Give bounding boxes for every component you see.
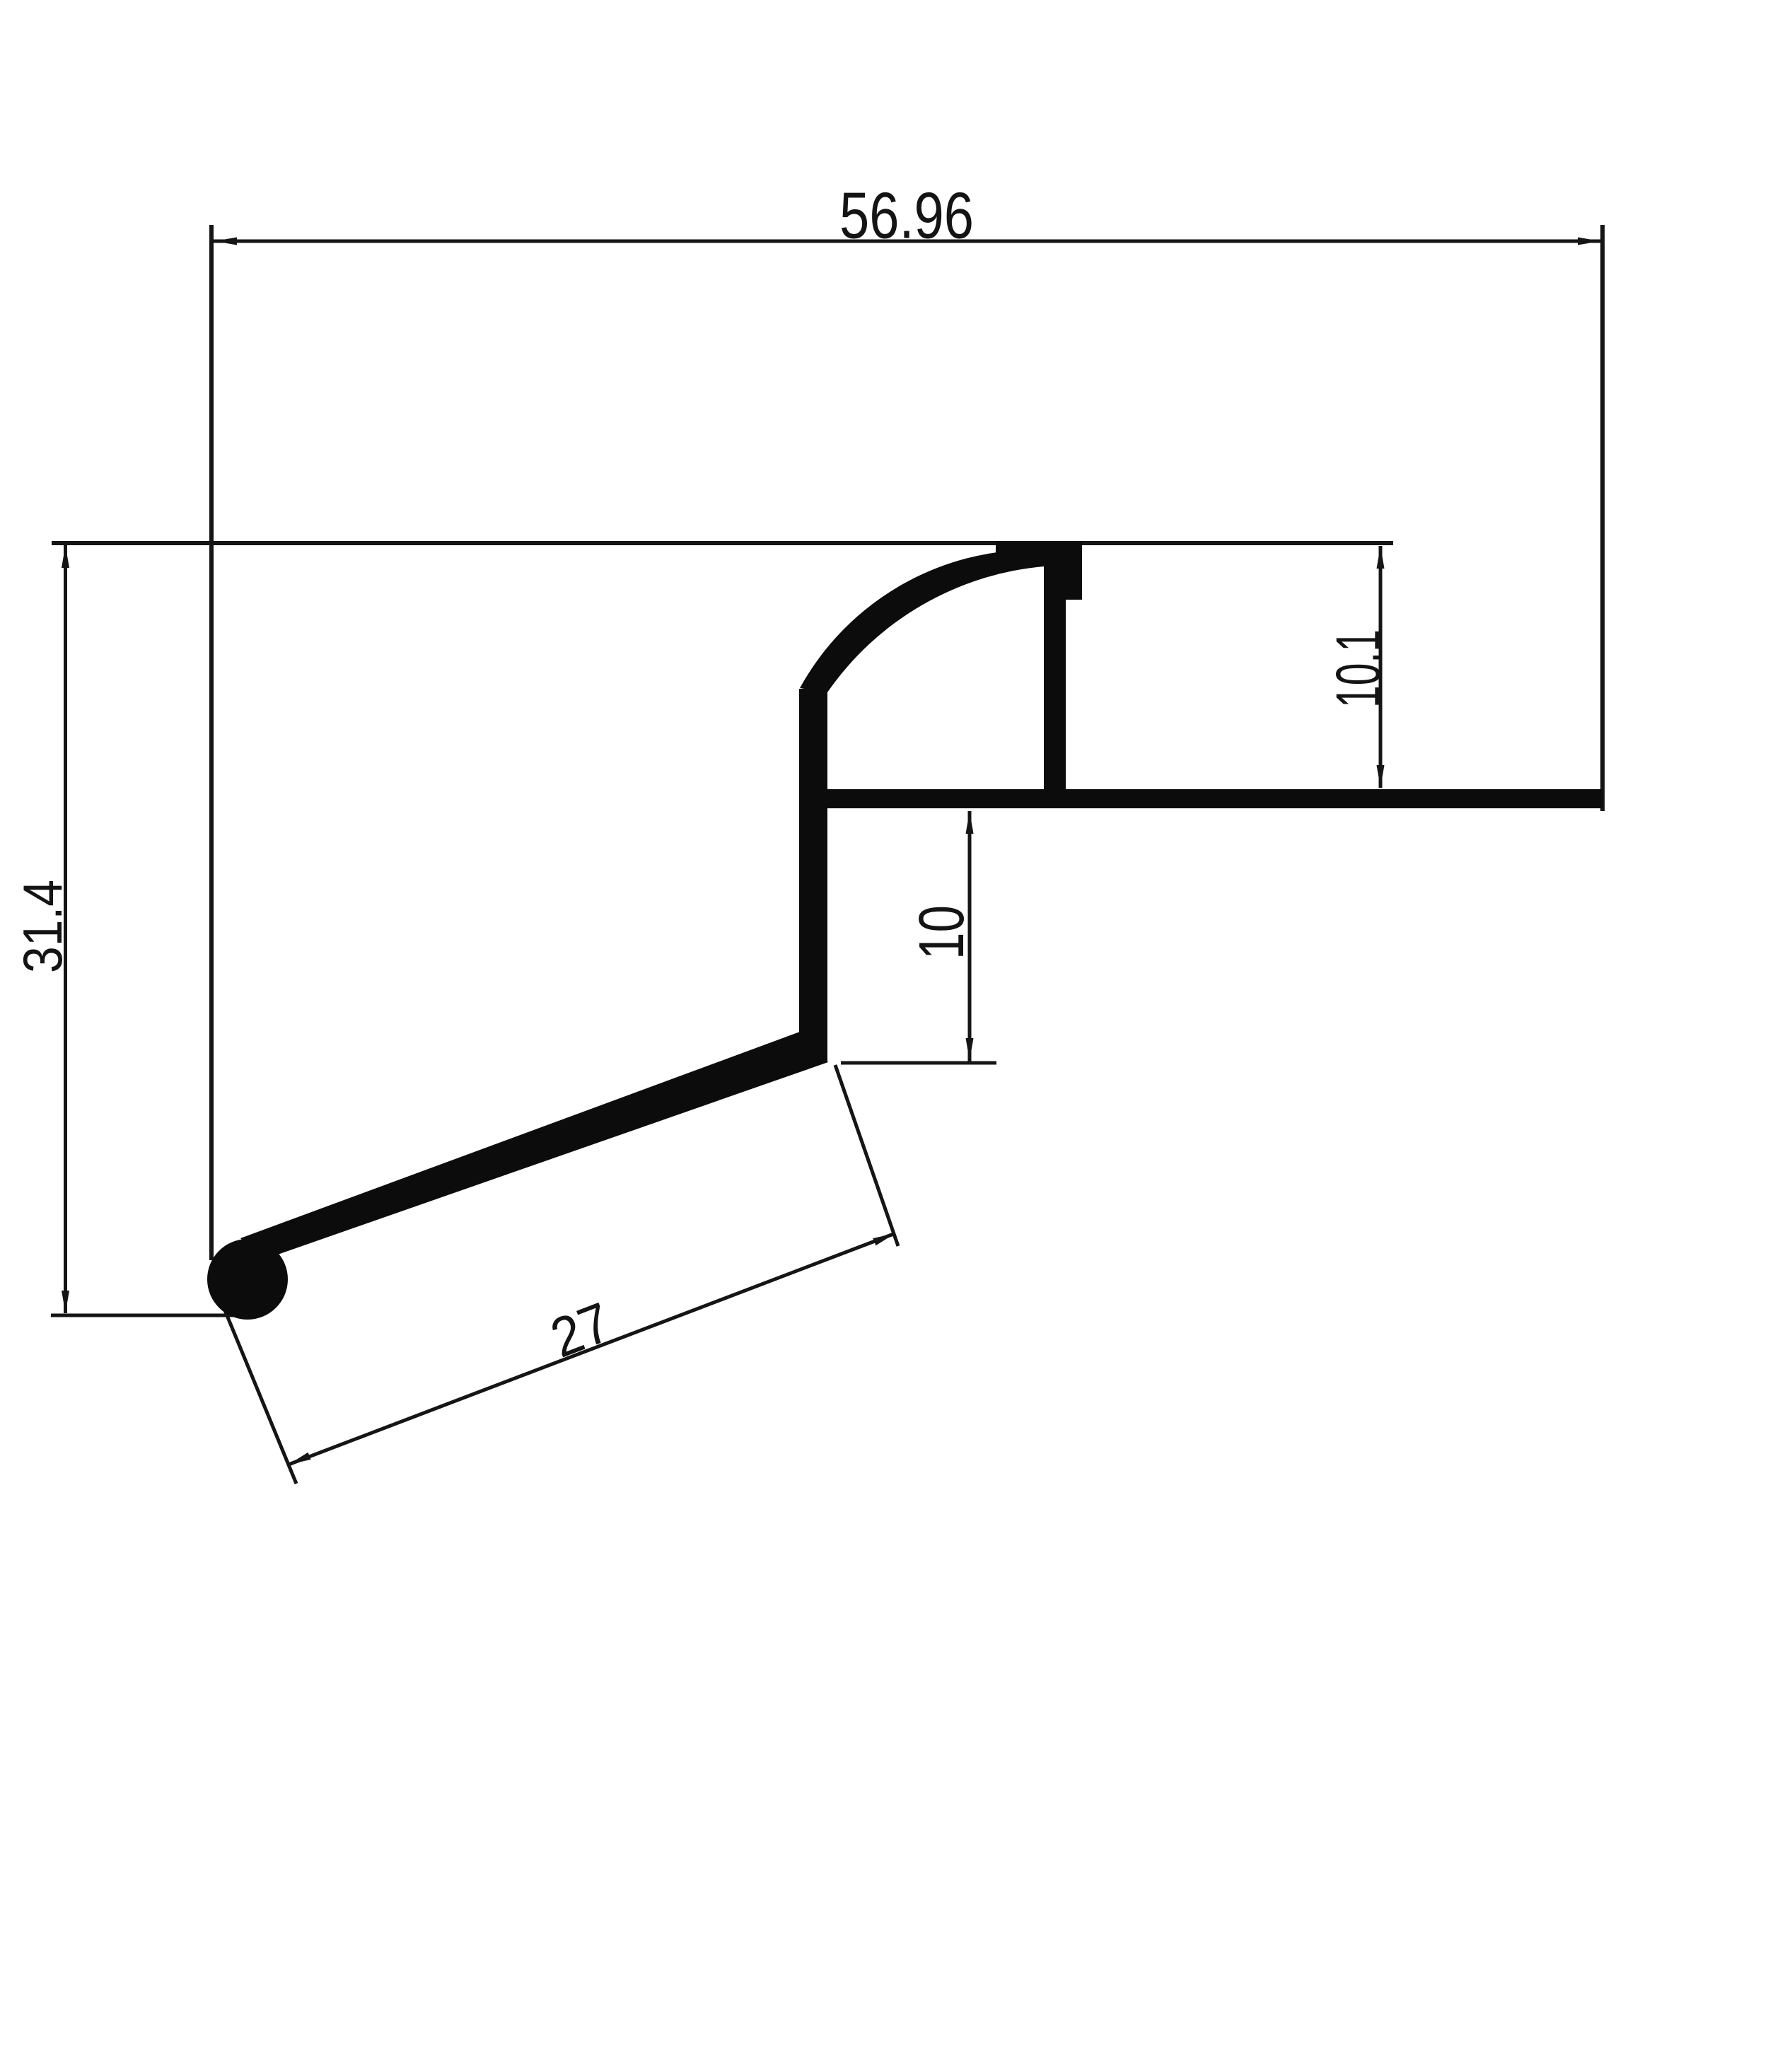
svg-text:10.1: 10.1 — [1322, 629, 1393, 708]
svg-text:10: 10 — [907, 905, 977, 960]
svg-text:56.96: 56.96 — [839, 179, 974, 252]
svg-text:31.4: 31.4 — [11, 880, 74, 973]
